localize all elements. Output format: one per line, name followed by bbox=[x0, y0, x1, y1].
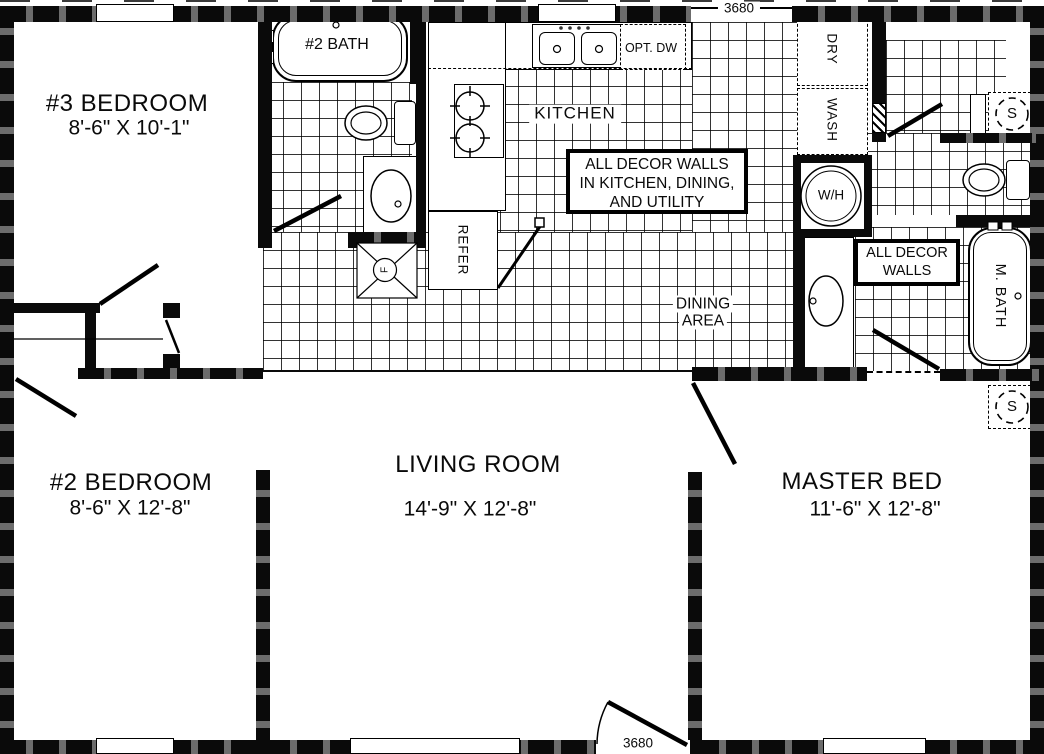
decor-note-main: ALL DECOR WALLS IN KITCHEN, DINING, AND … bbox=[566, 149, 748, 214]
shelf-support-top bbox=[970, 94, 986, 135]
wall-dining-master bbox=[692, 367, 867, 381]
door-swing-bedroom3 bbox=[100, 265, 158, 304]
master-bath-label: M. BATH bbox=[992, 264, 1008, 329]
bath2-toilet-tank bbox=[394, 101, 416, 145]
rear-door-size-label: 3680 bbox=[718, 2, 760, 17]
optional-dishwasher-label: OPT. DW bbox=[623, 42, 679, 56]
washer-label: WASH bbox=[825, 98, 840, 142]
window-master bbox=[823, 738, 926, 754]
wall-chase-hatch bbox=[872, 103, 886, 133]
wall-bed2-living bbox=[256, 470, 270, 754]
wall-hall-bottom bbox=[78, 368, 263, 379]
wall-masterbath-bottom bbox=[940, 369, 1044, 381]
master-bedroom-label: MASTER BED bbox=[781, 469, 942, 495]
masterbath-vanity bbox=[800, 237, 854, 376]
bedroom3-label: #3 BEDROOM bbox=[46, 91, 208, 117]
bedroom2-dims: 8'-6" X 12'-8" bbox=[70, 496, 191, 519]
window-bed2 bbox=[96, 738, 174, 754]
closet-door-panel bbox=[166, 320, 179, 353]
wall-bed3-bottom bbox=[14, 303, 100, 313]
shelf-label-bottom: S bbox=[1007, 399, 1017, 416]
decor-note-main-line3: AND UTILITY bbox=[570, 193, 744, 212]
kitchen-decor-dash-line bbox=[428, 68, 692, 69]
exterior-wall-left bbox=[0, 6, 14, 754]
wall-bath2-bottom bbox=[348, 232, 426, 248]
bath2-label: #2 BATH bbox=[305, 36, 369, 54]
bath2-vanity bbox=[363, 156, 419, 234]
tile-edge-line bbox=[263, 370, 692, 372]
water-heater-label: W/H bbox=[818, 189, 844, 204]
front-door-size-label: 3680 bbox=[617, 737, 659, 752]
decor-note-bath-line2: WALLS bbox=[858, 262, 956, 280]
bedroom2-label: #2 BEDROOM bbox=[50, 470, 212, 496]
masterbath-toilet-tank bbox=[1006, 160, 1030, 200]
master-bedroom-dims: 11'-6" X 12'-8" bbox=[809, 497, 940, 520]
living-room-label: LIVING ROOM bbox=[395, 452, 561, 478]
shelf-label-top: S bbox=[1007, 106, 1017, 123]
window-kitchen bbox=[538, 4, 616, 22]
wall-bath2-kitchen-upper bbox=[410, 22, 426, 84]
refrigerator-label: REFER bbox=[456, 225, 471, 276]
decor-note-main-line1: ALL DECOR WALLS bbox=[570, 155, 744, 174]
dryer-label: DRY bbox=[825, 33, 840, 64]
bedroom3-dims: 8'-6" X 10'-1" bbox=[69, 116, 190, 139]
wall-bed3-bath2 bbox=[258, 22, 272, 248]
furnace-label: F bbox=[380, 267, 391, 273]
window-bed3 bbox=[96, 4, 174, 22]
front-door-swing-arc bbox=[597, 702, 608, 744]
kitchen-sink-basin-left bbox=[539, 32, 575, 65]
closet-divider bbox=[85, 313, 96, 373]
eave-line bbox=[0, 0, 1044, 2]
kitchen-label: KITCHEN bbox=[529, 105, 621, 124]
window-living bbox=[350, 738, 520, 754]
closet-jamb-top bbox=[163, 303, 180, 318]
wall-dining-masterbath bbox=[793, 230, 805, 372]
wall-rearhall-shelf bbox=[940, 133, 1036, 143]
master-door-header-dash bbox=[867, 371, 940, 373]
dining-area-label-line2: AREA bbox=[679, 312, 727, 329]
floor-plan: ALL DECOR WALLS IN KITCHEN, DINING, AND … bbox=[0, 0, 1044, 754]
dining-area-label-line1: DINING bbox=[673, 295, 733, 312]
living-room-dims: 14'-9" X 12'-8" bbox=[404, 497, 537, 520]
kitchen-sink-basin-right bbox=[581, 32, 617, 65]
decor-note-bath-line1: ALL DECOR bbox=[858, 244, 956, 262]
wall-bath2-kitchen-lower bbox=[416, 84, 426, 248]
door-swing-master-bedroom bbox=[693, 383, 735, 464]
wall-living-master bbox=[688, 472, 702, 754]
decor-note-main-line2: IN KITCHEN, DINING, bbox=[570, 174, 744, 193]
door-swing-bedroom2 bbox=[16, 379, 76, 416]
kitchen-range bbox=[454, 84, 504, 158]
decor-note-bath: ALL DECOR WALLS bbox=[854, 239, 960, 286]
wall-toilet-tub-divider bbox=[956, 215, 1044, 227]
